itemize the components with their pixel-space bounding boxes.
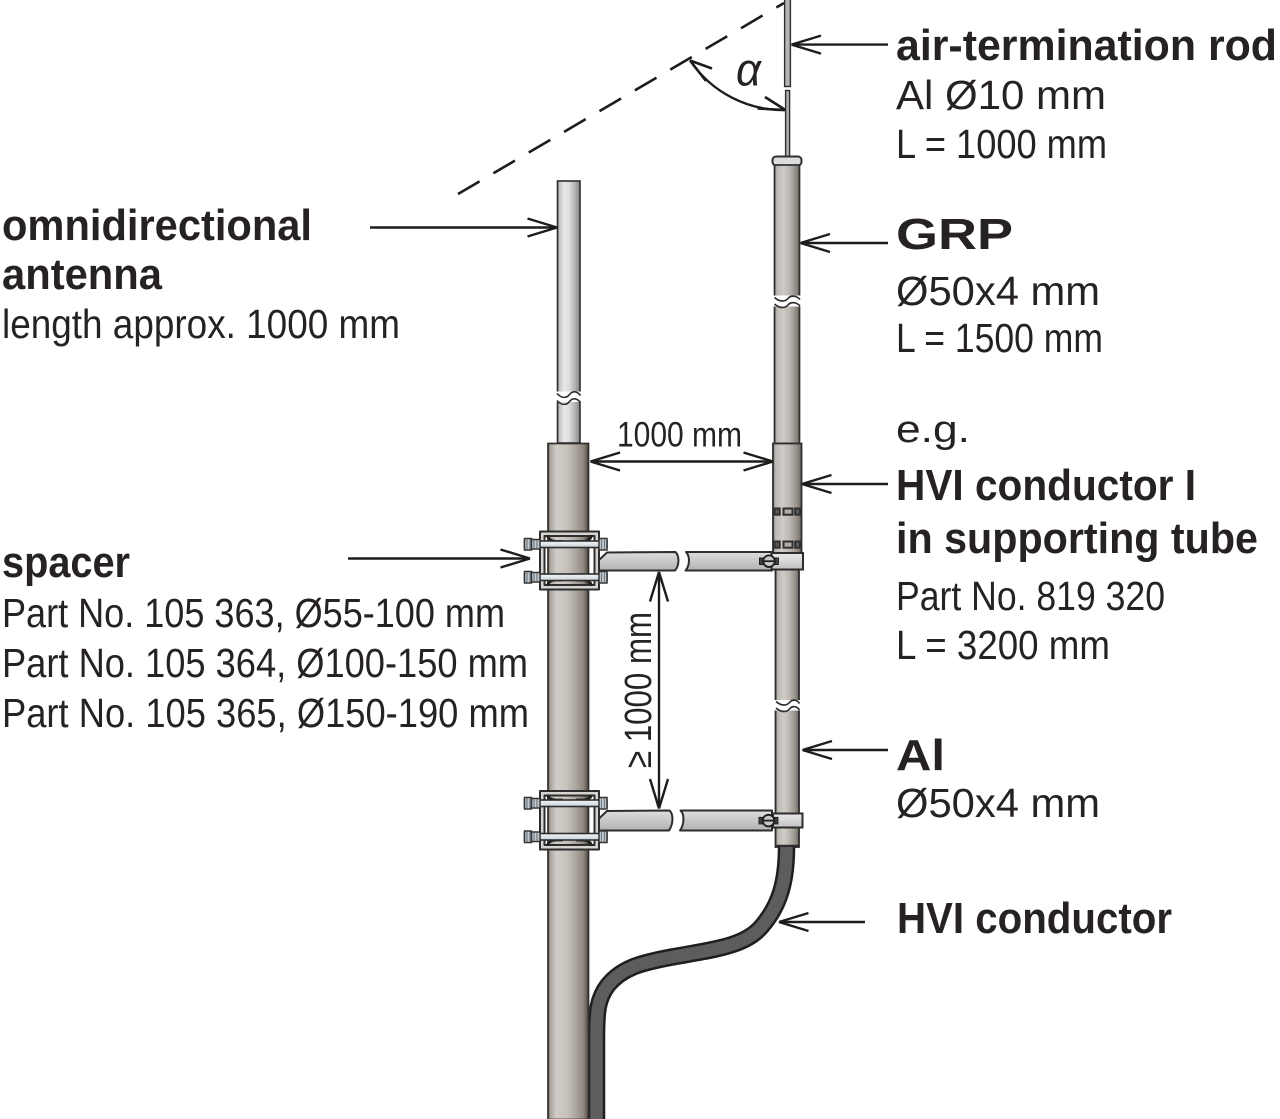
svg-text:HVI conductor: HVI conductor (897, 894, 1172, 943)
svg-text:GRP: GRP (896, 210, 1013, 259)
svg-text:omnidirectional: omnidirectional (2, 201, 312, 250)
svg-text:Part No. 819 320: Part No. 819 320 (896, 573, 1165, 619)
svg-text:Ø50x4 mm: Ø50x4 mm (896, 268, 1100, 314)
svg-text:Part No. 105 364, Ø100-150 mm: Part No. 105 364, Ø100-150 mm (2, 640, 528, 686)
svg-text:≥ 1000 mm: ≥ 1000 mm (618, 612, 660, 768)
svg-text:Ø50x4 mm: Ø50x4 mm (896, 780, 1100, 826)
svg-text:antenna: antenna (2, 250, 162, 299)
svg-text:Al: Al (896, 731, 945, 780)
svg-text:Al Ø10 mm: Al Ø10 mm (896, 72, 1106, 118)
svg-text:α: α (736, 44, 763, 96)
svg-text:length approx. 1000 mm: length approx. 1000 mm (2, 301, 400, 347)
svg-text:e.g.: e.g. (896, 409, 970, 451)
svg-text:L = 1500 mm: L = 1500 mm (896, 315, 1103, 361)
svg-text:spacer: spacer (2, 538, 130, 587)
svg-text:1000 mm: 1000 mm (617, 416, 742, 455)
svg-text:L = 1000 mm: L = 1000 mm (896, 121, 1107, 167)
svg-text:L = 3200 mm: L = 3200 mm (896, 622, 1110, 668)
svg-text:in supporting tube: in supporting tube (896, 514, 1258, 563)
svg-text:Part No. 105 365, Ø150-190 mm: Part No. 105 365, Ø150-190 mm (2, 690, 529, 736)
svg-text:HVI conductor I: HVI conductor I (896, 461, 1196, 510)
svg-text:Part No. 105 363, Ø55-100 mm: Part No. 105 363, Ø55-100 mm (2, 590, 505, 636)
svg-text:air-termination rod: air-termination rod (896, 21, 1277, 70)
